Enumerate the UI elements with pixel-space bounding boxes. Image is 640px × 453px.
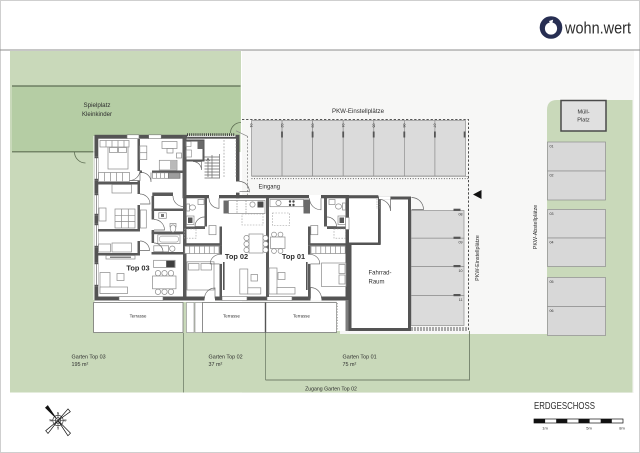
svg-text:ERDGESCHOSS: ERDGESCHOSS bbox=[534, 401, 595, 412]
svg-text:01: 01 bbox=[249, 124, 253, 128]
svg-text:PKW-Abstellplätze: PKW-Abstellplätze bbox=[533, 205, 539, 250]
svg-text:Müll-: Müll- bbox=[577, 110, 589, 116]
svg-text:06: 06 bbox=[402, 124, 406, 128]
svg-text:Terrasse: Terrasse bbox=[130, 314, 147, 319]
svg-text:Terrasse: Terrasse bbox=[223, 314, 240, 319]
svg-text:1m: 1m bbox=[542, 426, 548, 431]
svg-text:11: 11 bbox=[459, 298, 463, 302]
svg-text:Raum: Raum bbox=[369, 279, 385, 286]
svg-text:S: S bbox=[57, 427, 59, 431]
svg-text:Top 01: Top 01 bbox=[282, 252, 305, 261]
svg-text:wohn.wert: wohn.wert bbox=[564, 20, 631, 38]
svg-text:W: W bbox=[49, 419, 52, 423]
svg-text:03: 03 bbox=[550, 212, 554, 216]
svg-text:Zugang Garten Top 02: Zugang Garten Top 02 bbox=[305, 387, 357, 393]
svg-text:10: 10 bbox=[459, 269, 463, 273]
svg-text:06: 06 bbox=[550, 309, 554, 313]
svg-text:Garten Top 02: Garten Top 02 bbox=[209, 355, 243, 361]
svg-text:07: 07 bbox=[433, 124, 437, 128]
svg-text:PKW-Einstellplätze: PKW-Einstellplätze bbox=[475, 235, 481, 281]
svg-text:Top 03: Top 03 bbox=[126, 264, 149, 273]
svg-text:09: 09 bbox=[459, 241, 463, 245]
svg-text:Garten Top 03: Garten Top 03 bbox=[72, 355, 106, 361]
svg-text:04: 04 bbox=[550, 241, 554, 245]
svg-text:05: 05 bbox=[371, 124, 375, 128]
svg-text:PKW-Einstellplätze: PKW-Einstellplätze bbox=[332, 108, 384, 115]
svg-text:Top 02: Top 02 bbox=[225, 252, 248, 261]
svg-text:Spielplatz: Spielplatz bbox=[84, 102, 111, 109]
svg-text:75 m²: 75 m² bbox=[343, 362, 357, 368]
svg-text:Platz: Platz bbox=[577, 118, 590, 124]
svg-text:08: 08 bbox=[459, 213, 463, 217]
svg-text:Garten Top 01: Garten Top 01 bbox=[343, 355, 377, 361]
svg-text:04: 04 bbox=[341, 124, 345, 128]
svg-text:5m: 5m bbox=[586, 426, 592, 431]
svg-text:37 m²: 37 m² bbox=[209, 362, 223, 368]
svg-text:8m: 8m bbox=[619, 426, 625, 431]
svg-text:03: 03 bbox=[310, 124, 314, 128]
svg-text:Terrasse: Terrasse bbox=[293, 314, 310, 319]
svg-text:05: 05 bbox=[550, 280, 554, 284]
svg-text:195 m²: 195 m² bbox=[72, 362, 89, 368]
svg-text:Eingang: Eingang bbox=[259, 184, 281, 191]
svg-text:01: 01 bbox=[550, 145, 554, 149]
svg-text:02: 02 bbox=[550, 174, 554, 178]
svg-text:02: 02 bbox=[280, 124, 284, 128]
svg-text:Fahrrad-: Fahrrad- bbox=[369, 270, 392, 277]
svg-text:Kleinkinder: Kleinkinder bbox=[82, 111, 112, 118]
